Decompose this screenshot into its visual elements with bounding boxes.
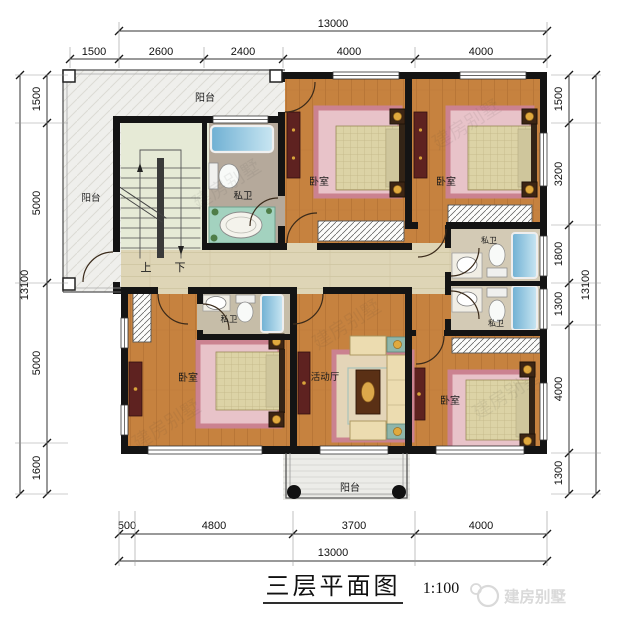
plant — [212, 209, 219, 216]
tv-stand-handle — [302, 381, 306, 385]
tv-stand-handle — [134, 387, 138, 391]
stair-stringer — [157, 158, 164, 258]
dim-label: 13100 — [580, 270, 592, 301]
sofa-seat — [350, 336, 386, 355]
sofa-set — [334, 336, 412, 440]
lamp — [394, 428, 402, 436]
window — [540, 236, 547, 276]
plant — [211, 235, 218, 242]
brand-watermark: 建房别墅 — [471, 584, 567, 606]
wardrobe — [414, 112, 427, 178]
window — [460, 72, 526, 79]
label-stair-up: 上 — [141, 261, 152, 274]
window — [540, 133, 547, 186]
plant — [266, 208, 272, 214]
window — [121, 318, 128, 348]
bathtub — [211, 126, 273, 152]
label-bath-r2: 私卫 — [488, 319, 504, 328]
plan-title: 三层平面图 — [266, 574, 401, 600]
wardrobe-handle — [419, 156, 422, 159]
dim-label: 1500 — [31, 87, 43, 111]
lamp — [524, 437, 532, 445]
bed-top-mid — [316, 108, 405, 197]
dim-label: 1800 — [553, 242, 565, 266]
label-bath-main: 私卫 — [233, 191, 253, 202]
window — [213, 116, 268, 123]
dim-label: 3200 — [553, 162, 565, 186]
toilet-tank — [487, 268, 507, 277]
label-bedroom-tr: 卧室 — [436, 175, 456, 188]
pillow — [266, 355, 280, 407]
label-bath-r1: 私卫 — [481, 236, 497, 245]
lamp — [526, 113, 534, 121]
lamp — [526, 186, 534, 194]
label-balcony-left: 阳台 — [81, 192, 100, 204]
label-bedroom-bl: 卧室 — [178, 371, 198, 384]
dim-label: 1600 — [31, 456, 43, 480]
sliding-door — [320, 446, 388, 454]
closet — [133, 292, 151, 342]
dim-label: 1300 — [553, 292, 565, 316]
column — [63, 278, 75, 290]
toilet-tank — [487, 288, 507, 297]
label-bedroom-tm: 卧室 — [309, 175, 329, 188]
label-bedroom-br: 卧室 — [440, 394, 460, 407]
dim-label: 500 — [118, 520, 136, 532]
window — [540, 289, 547, 329]
floor-plan-sheet: 阳台 阳台 私卫 卧室 卧室 上 下 私卫 私卫 私卫 卧室 活动厅 卧室 阳台… — [0, 0, 640, 621]
porch-column — [287, 485, 301, 499]
closet — [448, 205, 532, 224]
pillow — [386, 129, 400, 187]
table-decor — [362, 382, 375, 402]
dim-label: 5000 — [31, 191, 43, 215]
lamp — [394, 186, 402, 194]
bathtub — [512, 233, 537, 278]
toilet-bowl — [237, 302, 253, 322]
dim-label: 4000 — [469, 46, 493, 58]
wardrobe-handle — [292, 156, 295, 159]
lamp — [394, 341, 402, 349]
column — [270, 70, 282, 82]
wardrobe-handle — [419, 128, 422, 131]
headboard — [279, 349, 285, 413]
wardrobe — [287, 112, 300, 178]
dim-label: 13000 — [318, 547, 349, 559]
toilet-bowl — [489, 244, 505, 266]
dim-label: 4000 — [553, 377, 565, 401]
window — [436, 446, 524, 454]
window — [121, 405, 128, 435]
brand-name: 建房别墅 — [504, 587, 567, 606]
lamp — [273, 416, 281, 424]
dim-label: 1300 — [553, 461, 565, 485]
porch-column — [392, 485, 406, 499]
sofa-seat — [350, 421, 386, 440]
tv-stand-handle — [417, 392, 421, 396]
closet — [318, 221, 404, 241]
plan-scale: 1:100 — [423, 580, 459, 597]
dim-label: 13100 — [19, 270, 31, 301]
label-stair-down: 下 — [175, 262, 186, 274]
closet — [452, 338, 540, 353]
dim-label: 5000 — [31, 351, 43, 375]
lamp — [394, 113, 402, 121]
dim-label: 2600 — [149, 46, 173, 58]
wardrobe-handle — [292, 128, 295, 131]
dim-label: 4000 — [469, 520, 493, 532]
column — [63, 70, 75, 82]
label-living: 活动厅 — [311, 371, 340, 383]
window — [333, 72, 399, 79]
dim-label: 2400 — [231, 46, 255, 58]
floor-balcony-left — [63, 70, 121, 292]
title-block: 三层平面图 1:100 — [263, 574, 459, 603]
dim-label: 4000 — [337, 46, 361, 58]
bed-bottom-left — [198, 334, 285, 427]
dim-label: 1500 — [553, 87, 565, 111]
dim-label: 4800 — [202, 520, 226, 532]
label-bath-bl: 私卫 — [220, 314, 238, 324]
dim-label: 1500 — [82, 46, 106, 58]
window — [148, 446, 262, 454]
floor-plan-drawing: 阳台 阳台 私卫 卧室 卧室 上 下 私卫 私卫 私卫 卧室 活动厅 卧室 阳台… — [0, 0, 640, 621]
window — [540, 383, 547, 440]
label-balcony-top: 阳台 — [195, 91, 215, 104]
dim-label: 13000 — [318, 18, 349, 30]
dim-label: 3700 — [342, 520, 366, 532]
pillow — [518, 129, 532, 187]
shower — [261, 295, 283, 332]
label-balcony-bottom: 阳台 — [340, 481, 360, 494]
bathtub — [512, 286, 537, 330]
